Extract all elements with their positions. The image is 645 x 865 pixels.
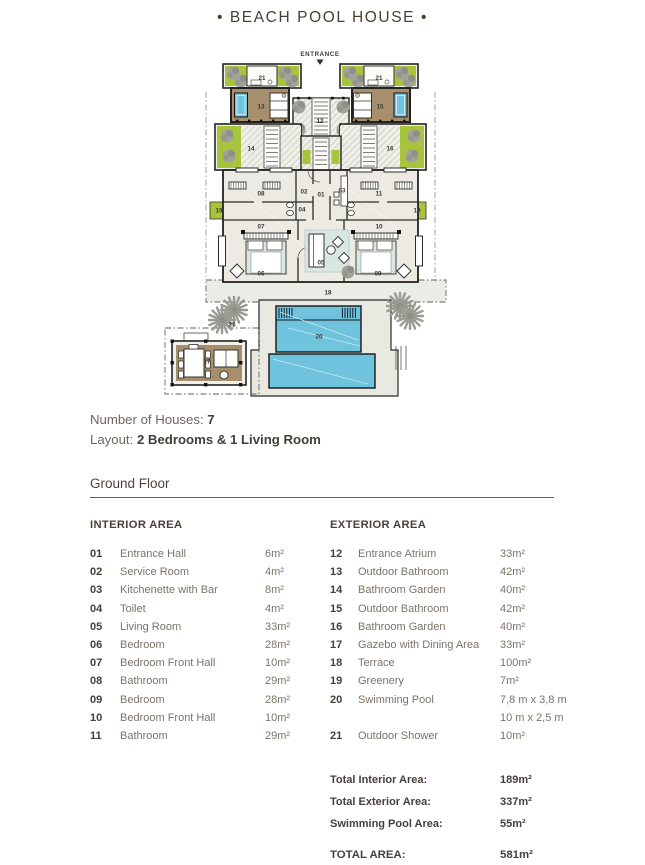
plan-room-label: 20: [315, 334, 323, 341]
houses-line: Number of Houses: 7: [90, 410, 321, 430]
table-row: 01Entrance Hall6m²: [90, 545, 325, 563]
row-area-value: 7,8 m x 3,8 m: [500, 691, 580, 709]
row-area-value: 10m²: [500, 727, 580, 745]
totals-row: Swimming Pool Area:55m²: [330, 813, 580, 835]
table-row: 02Service Room4m²: [90, 563, 325, 581]
plan-room-label: 13: [257, 104, 265, 111]
row-area: 100m²: [500, 654, 580, 672]
row-area-value: 40m²: [500, 581, 580, 599]
row-area-value: 28m²: [265, 636, 325, 654]
table-row: 04Toilet4m²: [90, 600, 325, 618]
totals-rows: Total Interior Area:189m²Total Exterior …: [330, 769, 580, 835]
row-area: 40m²: [500, 618, 580, 636]
row-number: 11: [90, 727, 120, 745]
row-name: Toilet: [120, 600, 265, 618]
total-area-row: TOTAL AREA: 581m²: [330, 849, 580, 861]
row-number: 21: [330, 727, 358, 745]
row-area: 33m²: [500, 636, 580, 654]
table-row: 05Living Room33m²: [90, 618, 325, 636]
row-area-value: 33m²: [500, 636, 580, 654]
table-row: 10Bedroom Front Hall10m²: [90, 709, 325, 727]
row-area-value: 7m²: [500, 672, 580, 690]
plan-room-label: 18: [324, 290, 332, 297]
plan-room-label: 04: [298, 207, 306, 214]
plan-room-label: 12: [316, 118, 324, 125]
row-area-value: 42m²: [500, 600, 580, 618]
layout-label: Layout:: [90, 432, 137, 447]
row-number: 12: [330, 545, 358, 563]
row-area-value: 40m²: [500, 618, 580, 636]
row-number: 20: [330, 691, 358, 709]
row-area: 10m²: [265, 654, 325, 672]
row-area: 33m²: [265, 618, 325, 636]
plan-room-label: 21: [228, 322, 236, 329]
row-area: 4m²: [265, 600, 325, 618]
row-area-value: 33m²: [500, 545, 580, 563]
layout-value: 2 Bedrooms & 1 Living Room: [137, 432, 321, 447]
entrance-arrow-icon: [317, 60, 324, 66]
totals-row: Total Exterior Area:337m²: [330, 791, 580, 813]
plan-room-label: 07: [257, 224, 265, 231]
table-row: 15Outdoor Bathroom42m²: [330, 600, 580, 618]
layout-line: Layout: 2 Bedrooms & 1 Living Room: [90, 430, 321, 450]
plan-room-label: 14: [247, 146, 255, 153]
row-area-value: 10m²: [265, 709, 325, 727]
table-row: 13Outdoor Bathroom42m²: [330, 563, 580, 581]
row-area-value: 42m²: [500, 563, 580, 581]
row-area: 40m²: [500, 581, 580, 599]
row-area: 42m²: [500, 563, 580, 581]
totals-label: Swimming Pool Area:: [330, 813, 500, 835]
row-area-value-2: 10 m x 2,5 m: [500, 709, 580, 727]
row-name: Living Room: [120, 618, 265, 636]
plan-room-label: 02: [300, 189, 308, 196]
plan-room-label: 19: [215, 208, 223, 215]
row-name: Bedroom: [120, 691, 265, 709]
row-area-value: 33m²: [265, 618, 325, 636]
row-name: Bedroom Front Hall: [120, 654, 265, 672]
table-row: 17Gazebo with Dining Area33m²: [330, 636, 580, 654]
row-area-value: 8m²: [265, 581, 325, 599]
plan-room-label: 17: [203, 359, 211, 366]
row-area: 10m²: [265, 709, 325, 727]
row-name: Outdoor Bathroom: [358, 563, 500, 581]
houses-label: Number of Houses:: [90, 412, 207, 427]
row-name: Bathroom: [120, 672, 265, 690]
info-block: Number of Houses: 7 Layout: 2 Bedrooms &…: [90, 410, 321, 449]
table-row: 07Bedroom Front Hall10m²: [90, 654, 325, 672]
row-area: 7,8 m x 3,8 m10 m x 2,5 m: [500, 691, 580, 727]
section-divider: [90, 497, 554, 498]
table-row: 03Kitchenette with Bar8m²: [90, 581, 325, 599]
table-row: 21Outdoor Shower10m²: [330, 727, 580, 745]
total-area-label: TOTAL AREA:: [330, 849, 500, 861]
row-number: 05: [90, 618, 120, 636]
houses-value: 7: [207, 412, 214, 427]
interior-table-body: 01Entrance Hall6m²02Service Room4m²03Kit…: [90, 545, 325, 745]
row-number: 16: [330, 618, 358, 636]
total-area-value: 581m²: [500, 849, 580, 861]
row-name: Kitchenette with Bar: [120, 581, 265, 599]
plan-room-label: 05: [317, 260, 325, 267]
row-area-value: 100m²: [500, 654, 580, 672]
row-number: 09: [90, 691, 120, 709]
plan-room-label: 09: [374, 271, 382, 278]
totals-block: Total Interior Area:189m²Total Exterior …: [330, 769, 580, 861]
row-number: 19: [330, 672, 358, 690]
interior-header: INTERIOR AREA: [90, 519, 325, 531]
page: • BEACH POOL HOUSE •: [0, 0, 645, 865]
row-area-value: 6m²: [265, 545, 325, 563]
exterior-header: EXTERIOR AREA: [330, 519, 580, 531]
row-area: 8m²: [265, 581, 325, 599]
table-row: 11Bathroom29m²: [90, 727, 325, 745]
row-number: 14: [330, 581, 358, 599]
plan-room-label: 15: [376, 104, 384, 111]
row-area-value: 29m²: [265, 672, 325, 690]
row-area: 6m²: [265, 545, 325, 563]
row-area: 28m²: [265, 691, 325, 709]
row-name: Greenery: [358, 672, 500, 690]
table-row: 19Greenery7m²: [330, 672, 580, 690]
row-number: 10: [90, 709, 120, 727]
row-number: 03: [90, 581, 120, 599]
entrance-label: ENTRANCE: [300, 51, 339, 58]
plan-room-label: 19: [413, 208, 421, 215]
interior-table: INTERIOR AREA 01Entrance Hall6m²02Servic…: [90, 519, 325, 745]
plan-room-label: 03: [338, 188, 346, 195]
table-row: 16Bathroom Garden40m²: [330, 618, 580, 636]
floor-plan: ENTRANCE 2121131512141608020103110419190…: [158, 44, 465, 406]
page-title: • BEACH POOL HOUSE •: [0, 9, 645, 27]
row-name: Outdoor Shower: [358, 727, 500, 745]
table-row: 12Entrance Atrium33m²: [330, 545, 580, 563]
totals-label: Total Interior Area:: [330, 769, 500, 791]
plan-room-label: 21: [258, 75, 266, 82]
row-area-value: 10m²: [265, 654, 325, 672]
row-area-value: 4m²: [265, 600, 325, 618]
plan-room-label: 10: [375, 224, 383, 231]
totals-value: 189m²: [500, 769, 580, 791]
row-name: Service Room: [120, 563, 265, 581]
row-number: 13: [330, 563, 358, 581]
row-number: 01: [90, 545, 120, 563]
row-area: 29m²: [265, 727, 325, 745]
row-number: 18: [330, 654, 358, 672]
row-area: 42m²: [500, 600, 580, 618]
row-area: 29m²: [265, 672, 325, 690]
totals-value: 55m²: [500, 813, 580, 835]
row-name: Outdoor Bathroom: [358, 600, 500, 618]
row-name: Entrance Hall: [120, 545, 265, 563]
row-area-value: 28m²: [265, 691, 325, 709]
row-number: 04: [90, 600, 120, 618]
row-area-value: 29m²: [265, 727, 325, 745]
row-name: Entrance Atrium: [358, 545, 500, 563]
plan-room-label: 16: [386, 146, 394, 153]
table-row: 06Bedroom28m²: [90, 636, 325, 654]
row-area: 28m²: [265, 636, 325, 654]
row-number: 06: [90, 636, 120, 654]
row-area-value: 4m²: [265, 563, 325, 581]
row-area: 33m²: [500, 545, 580, 563]
plan-room-label: 06: [257, 271, 265, 278]
row-number: 17: [330, 636, 358, 654]
row-name: Swimming Pool: [358, 691, 500, 709]
row-name: Gazebo with Dining Area: [358, 636, 500, 654]
plan-room-label: 08: [257, 191, 265, 198]
row-number: 15: [330, 600, 358, 618]
row-name: Bathroom Garden: [358, 581, 500, 599]
totals-row: Total Interior Area:189m²: [330, 769, 580, 791]
totals-value: 337m²: [500, 791, 580, 813]
plan-room-label: 11: [376, 191, 383, 198]
section-title: Ground Floor: [90, 476, 170, 491]
table-row: 20Swimming Pool7,8 m x 3,8 m10 m x 2,5 m: [330, 691, 580, 727]
row-number: 07: [90, 654, 120, 672]
table-row: 18Terrace100m²: [330, 654, 580, 672]
row-area: 10m²: [500, 727, 580, 745]
table-row: 09Bedroom28m²: [90, 691, 325, 709]
row-area: 7m²: [500, 672, 580, 690]
row-name: Bathroom: [120, 727, 265, 745]
row-number: 08: [90, 672, 120, 690]
table-row: 14Bathroom Garden40m²: [330, 581, 580, 599]
row-name: Bedroom: [120, 636, 265, 654]
exterior-table-body: 12Entrance Atrium33m²13Outdoor Bathroom4…: [330, 545, 580, 745]
row-name: Bedroom Front Hall: [120, 709, 265, 727]
exterior-table: EXTERIOR AREA 12Entrance Atrium33m²13Out…: [330, 519, 580, 745]
row-name: Terrace: [358, 654, 500, 672]
plan-room-label: 21: [375, 75, 383, 82]
row-number: 02: [90, 563, 120, 581]
row-area: 4m²: [265, 563, 325, 581]
table-row: 08Bathroom29m²: [90, 672, 325, 690]
totals-label: Total Exterior Area:: [330, 791, 500, 813]
row-name: Bathroom Garden: [358, 618, 500, 636]
plan-room-label: 01: [317, 192, 325, 199]
